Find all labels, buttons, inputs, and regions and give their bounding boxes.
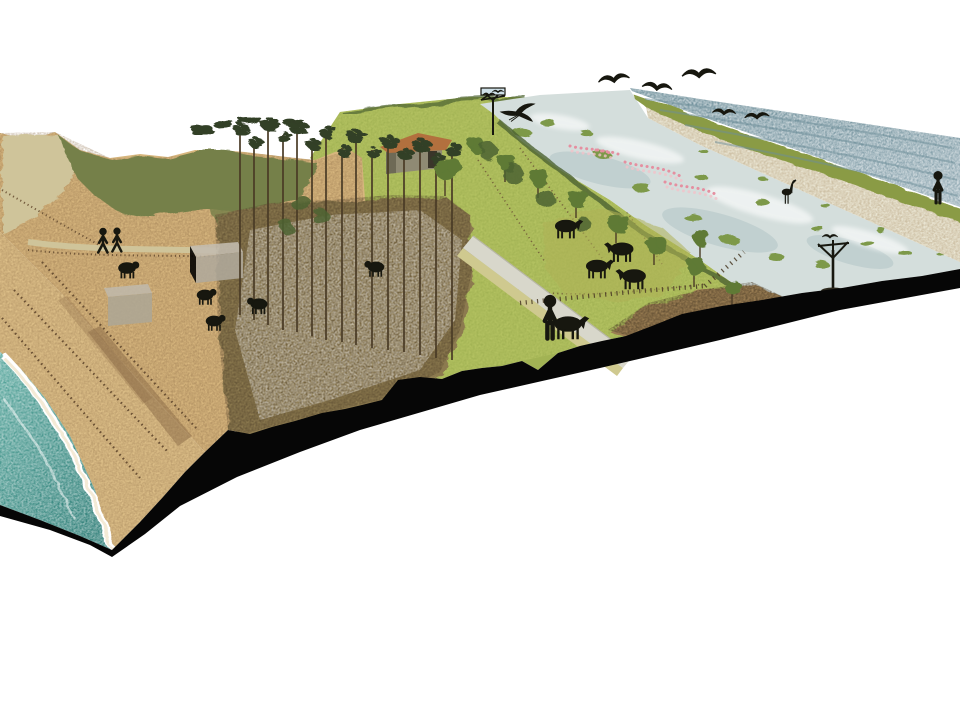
bunker-block-2 bbox=[104, 284, 152, 326]
landscape-svg bbox=[0, 0, 960, 720]
landscape-illustration bbox=[0, 0, 960, 720]
bunker-block-1 bbox=[190, 242, 243, 283]
